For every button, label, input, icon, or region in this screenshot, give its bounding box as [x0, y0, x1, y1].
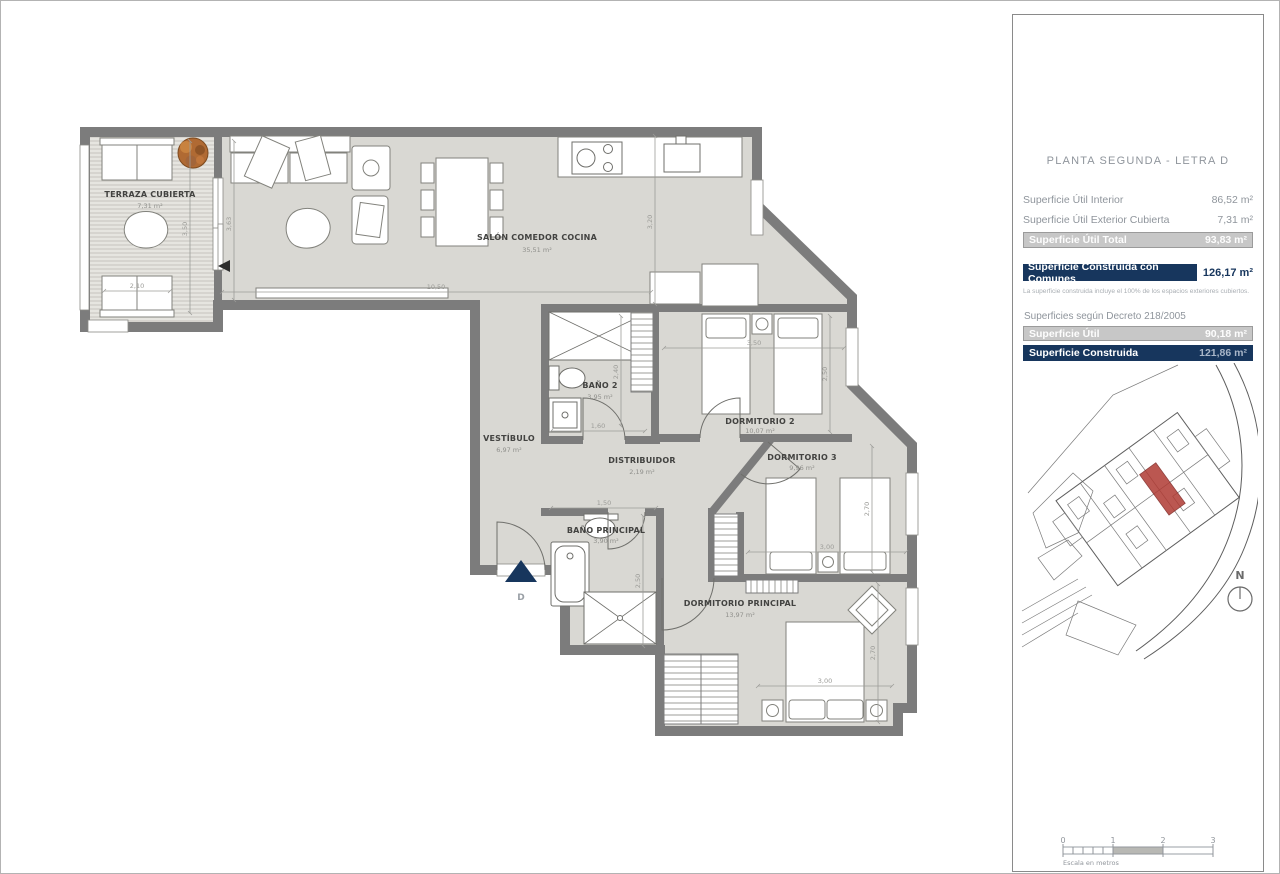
svg-text:2: 2: [1160, 836, 1165, 845]
info-panel: PLANTA SEGUNDA - LETRA D Superficie Útil…: [1012, 14, 1264, 872]
bedroom2-window: [846, 328, 858, 386]
svg-text:3,63: 3,63: [225, 217, 233, 231]
terrace-sliding-door: [213, 178, 223, 270]
row-value: 7,31 m²: [1217, 214, 1253, 226]
site-plan-map: N: [1018, 363, 1258, 663]
row-decreto-construida: Superficie Construida 121,86 m²: [1023, 345, 1253, 361]
svg-text:3,90 m²: 3,90 m²: [593, 537, 619, 545]
building-cluster: [1044, 404, 1251, 594]
room-label-dorm3: DORMITORIO 3: [767, 453, 837, 462]
north-arrow-icon: N: [1228, 569, 1252, 611]
scale-caption: Escala en metros: [1063, 859, 1119, 867]
svg-text:10,07 m²: 10,07 m²: [745, 427, 775, 435]
svg-text:2,70: 2,70: [869, 646, 877, 660]
svg-text:13,97 m²: 13,97 m²: [725, 611, 755, 619]
floorplan-page: { "plan": { "entry_label": "D", "rooms":…: [0, 0, 1280, 874]
row-label: Superficie Útil Interior: [1023, 194, 1123, 206]
svg-text:0: 0: [1060, 836, 1065, 845]
svg-text:6,97 m²: 6,97 m²: [496, 446, 522, 454]
svg-text:10,50: 10,50: [427, 283, 446, 291]
svg-text:1: 1: [1110, 836, 1115, 845]
row-value: 90,18 m²: [1205, 328, 1247, 340]
decreto-heading: Superficies según Decreto 218/2005: [1024, 311, 1186, 322]
room-label-salon: SALÓN COMEDOR COCINA: [477, 231, 598, 242]
row-label: Superficie Construida con Comunes: [1023, 264, 1197, 281]
svg-text:2,50: 2,50: [634, 574, 642, 588]
row-value: 121,86 m²: [1199, 347, 1247, 359]
row-value: 126,17 m²: [1197, 264, 1253, 281]
svg-text:1,60: 1,60: [591, 422, 605, 430]
wardrobe-bath2: [631, 312, 653, 392]
row-util-exterior: Superficie Útil Exterior Cubierta 7,31 m…: [1023, 211, 1253, 229]
construida-note: La superficie construida incluye el 100%…: [1023, 288, 1255, 295]
row-util-total: Superficie Útil Total 93,83 m²: [1023, 232, 1253, 248]
floor-plan: D 10,50 3,20 3,50 3,63 2,10 3,50 2,50 1,…: [0, 0, 1010, 874]
main-bedroom-window: [906, 588, 918, 645]
svg-text:2,70: 2,70: [863, 502, 871, 516]
highlighted-unit: [1140, 463, 1186, 515]
plan-title: PLANTA SEGUNDA - LETRA D: [1013, 155, 1263, 167]
room-label-banop: BAÑO PRINCIPAL: [567, 525, 645, 535]
kitchen-window: [751, 180, 763, 235]
row-label: Superficie Útil Total: [1029, 234, 1127, 246]
bedroom2-door-gap: [700, 433, 740, 443]
svg-text:3,50: 3,50: [181, 222, 189, 236]
terraza-step: [88, 320, 128, 332]
terraza-rail-window: [80, 145, 89, 310]
svg-text:35,51 m²: 35,51 m²: [522, 246, 552, 254]
svg-text:3,95 m²: 3,95 m²: [587, 393, 613, 401]
row-construida-comunes: Superficie Construida con Comunes 126,17…: [1023, 264, 1253, 281]
row-label: Superficie Útil: [1029, 328, 1100, 340]
svg-text:3,20: 3,20: [646, 215, 654, 229]
row-decreto-util: Superficie Útil 90,18 m²: [1023, 326, 1253, 341]
wardrobe-main-top: [746, 580, 798, 593]
scale-bar: 0 1 2 3 Escala en metros: [1055, 833, 1225, 873]
row-label: Superficie Útil Exterior Cubierta: [1023, 214, 1169, 226]
svg-text:3,00: 3,00: [820, 543, 834, 551]
row-util-interior: Superficie Útil Interior 86,52 m²: [1023, 191, 1253, 209]
svg-text:3: 3: [1210, 836, 1215, 845]
svg-text:9,96 m²: 9,96 m²: [789, 464, 815, 472]
row-value: 86,52 m²: [1212, 194, 1253, 206]
svg-text:3,50: 3,50: [747, 339, 761, 347]
bath2-door-gap: [583, 435, 625, 445]
svg-text:2,19 m²: 2,19 m²: [629, 468, 655, 476]
wardrobe-hall: [714, 514, 738, 576]
room-label-distribuidor: DISTRIBUIDOR: [608, 456, 676, 465]
svg-text:2,40: 2,40: [612, 365, 620, 379]
room-label-vestibulo: VESTÍBULO: [483, 432, 535, 443]
row-value: 93,83 m²: [1205, 234, 1247, 246]
room-label-dormp: DORMITORIO PRINCIPAL: [684, 599, 796, 608]
entry-letter: D: [517, 593, 524, 603]
room-label-terraza: TERRAZA CUBIERTA: [104, 190, 196, 199]
svg-text:3,00: 3,00: [818, 677, 832, 685]
plant-icon: [178, 138, 208, 168]
svg-text:N: N: [1235, 569, 1244, 582]
svg-text:7,31 m²: 7,31 m²: [137, 202, 163, 210]
svg-text:2,50: 2,50: [821, 367, 829, 381]
svg-text:1,50: 1,50: [597, 499, 611, 507]
svg-text:2,10: 2,10: [130, 282, 144, 290]
room-label-bano2: BAÑO 2: [582, 380, 617, 390]
row-label: Superficie Construida: [1029, 347, 1138, 359]
bedroom3-window: [906, 473, 918, 535]
room-label-dorm2: DORMITORIO 2: [725, 417, 795, 426]
